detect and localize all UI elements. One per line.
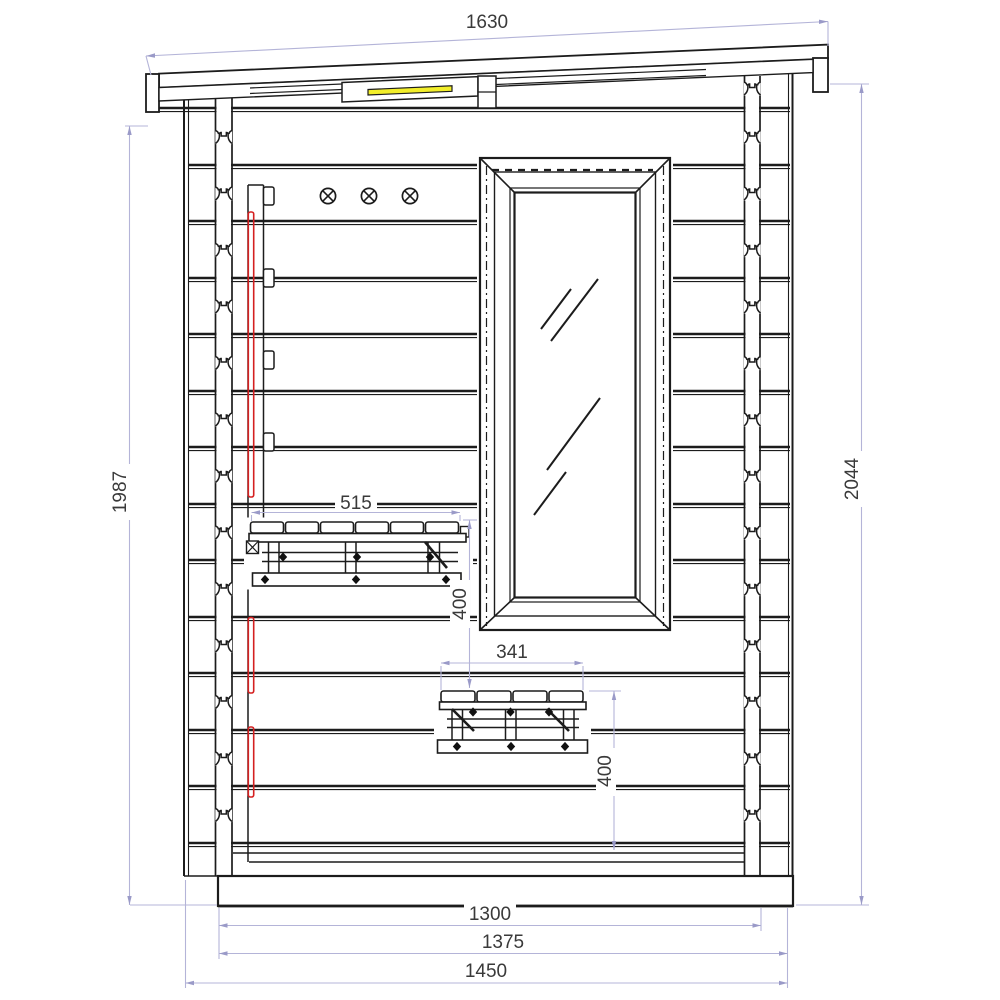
door-outer-frame [480, 158, 670, 630]
dim-right-height: 2044 [796, 84, 869, 905]
upper-bench [244, 518, 473, 590]
dim-base-mid-width-label: 1375 [482, 932, 524, 953]
panel-clip [264, 351, 275, 369]
dim-upper-bench-height-label: 400 [450, 588, 471, 620]
guard-rail-segment [248, 212, 253, 497]
right-post [744, 76, 761, 876]
guard-rail-segment [248, 618, 253, 694]
dim-lower-bench-height-label: 400 [595, 755, 616, 787]
dim-left-height-label: 1987 [110, 471, 131, 513]
dim-floor-inner-width-label: 1300 [469, 904, 511, 925]
left-post [215, 98, 232, 876]
dim-base-overall-width-label: 1450 [465, 961, 507, 982]
sauna-elevation-drawing: 1630 1987 2044 515 [0, 0, 1000, 1000]
roof-left-cap [146, 74, 159, 112]
vent-screw-icon [320, 188, 335, 203]
bench-seat-board [440, 702, 587, 710]
roof [146, 45, 828, 112]
drawing-canvas: 1630 1987 2044 515 [0, 0, 1000, 1000]
dim-roof-width-label: 1630 [466, 12, 508, 33]
vent-screw-icon [402, 188, 417, 203]
roof-right-cap [813, 58, 828, 92]
door [477, 155, 673, 633]
vent-screw-icon [361, 188, 376, 203]
lower-bench [434, 687, 591, 756]
dim-upper-bench-width-label: 515 [340, 493, 372, 514]
dim-lower-bench-width: 341 [441, 642, 583, 690]
dim-lower-bench-height: 400 [589, 691, 621, 850]
bench-seat-board [249, 534, 466, 543]
base-beam [218, 876, 793, 906]
base-platform [184, 853, 793, 906]
dim-left-height: 1987 [110, 126, 217, 905]
wall-left-edge [184, 100, 189, 876]
dim-upper-bench-width: 515 [252, 493, 461, 521]
wall-right-edge [789, 74, 793, 876]
vent-screws [320, 188, 417, 203]
dim-right-height-label: 2044 [842, 457, 863, 500]
dim-lower-bench-width-label: 341 [496, 642, 528, 663]
panel-clip [264, 187, 275, 205]
panel-clip [264, 433, 275, 451]
panel-clip [264, 269, 275, 287]
